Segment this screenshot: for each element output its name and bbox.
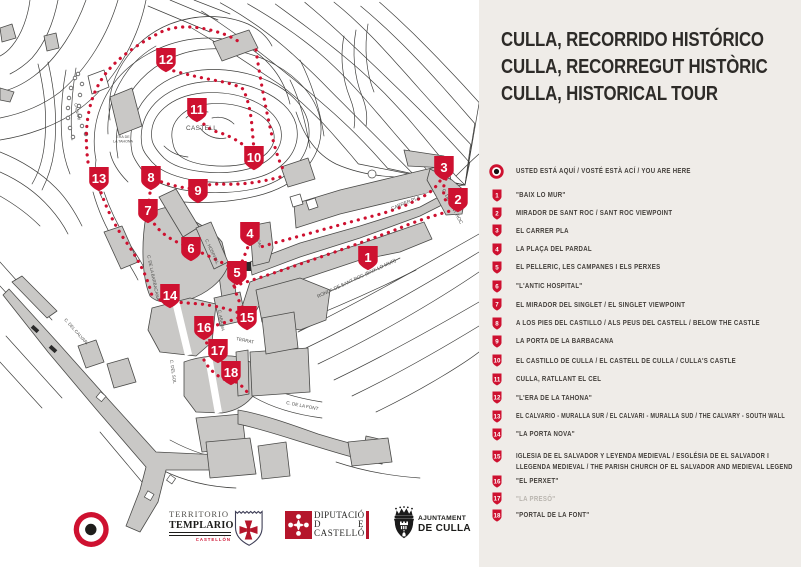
svg-text:7: 7 [495, 301, 499, 308]
svg-text:14: 14 [163, 288, 178, 303]
svg-text:9: 9 [495, 338, 499, 345]
svg-text:C. DE LA FONT: C. DE LA FONT [286, 400, 319, 411]
svg-text:4: 4 [246, 226, 254, 241]
svg-text:2: 2 [495, 210, 499, 217]
svg-text:16: 16 [494, 478, 501, 485]
svg-text:12: 12 [494, 394, 501, 401]
svg-text:8: 8 [147, 170, 154, 185]
svg-text:CASTELL: CASTELL [186, 125, 217, 132]
svg-text:C. DEL SOL: C. DEL SOL [169, 359, 177, 384]
svg-text:6: 6 [187, 241, 194, 256]
svg-text:16: 16 [197, 320, 211, 335]
svg-text:ERA DE: ERA DE [116, 135, 130, 139]
svg-text:4: 4 [495, 246, 499, 253]
svg-text:10: 10 [247, 150, 261, 165]
svg-text:8: 8 [495, 320, 499, 327]
svg-text:1: 1 [495, 192, 499, 199]
svg-text:12: 12 [159, 52, 173, 67]
svg-text:13: 13 [494, 413, 501, 420]
svg-text:3: 3 [440, 160, 447, 175]
svg-text:2: 2 [454, 192, 461, 207]
svg-text:14: 14 [494, 431, 501, 438]
svg-text:15: 15 [494, 453, 501, 460]
svg-text:TERRAT: TERRAT [236, 336, 255, 345]
svg-text:17: 17 [211, 343, 225, 358]
svg-text:7: 7 [144, 203, 151, 218]
svg-text:C. DEL CALVARI: C. DEL CALVARI [63, 317, 89, 345]
svg-text:6: 6 [495, 283, 499, 290]
svg-text:5: 5 [495, 264, 499, 271]
svg-text:18: 18 [494, 512, 501, 519]
svg-text:10: 10 [494, 358, 501, 365]
svg-text:9: 9 [194, 183, 201, 198]
svg-text:13: 13 [92, 171, 106, 186]
svg-text:1: 1 [364, 250, 371, 265]
svg-text:17: 17 [494, 495, 501, 502]
svg-text:11: 11 [190, 102, 204, 117]
svg-text:LA TAHONA: LA TAHONA [113, 140, 133, 144]
svg-text:15: 15 [240, 310, 254, 325]
svg-text:5: 5 [233, 265, 240, 280]
svg-text:18: 18 [224, 365, 238, 380]
svg-text:11: 11 [494, 376, 501, 383]
svg-text:3: 3 [495, 228, 499, 235]
